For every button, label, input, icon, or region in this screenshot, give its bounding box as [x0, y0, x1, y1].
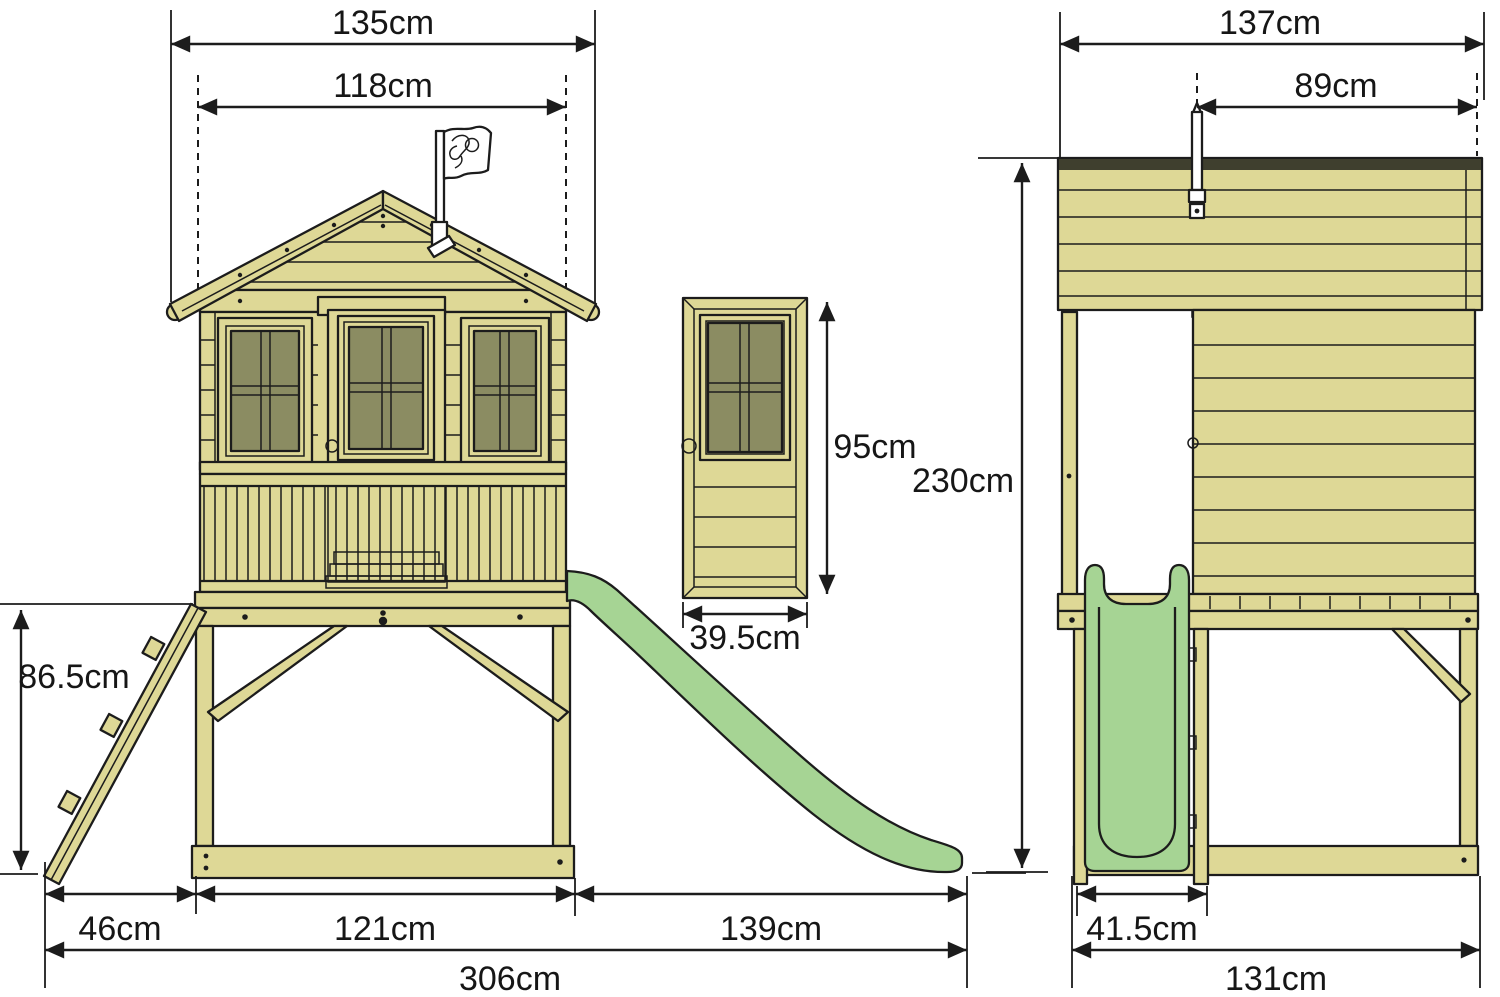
ladder-rung: [101, 714, 123, 737]
window-glass: [231, 331, 299, 451]
dim-label-total-height: 230cm: [912, 462, 1014, 500]
ladder-rung: [143, 637, 165, 660]
base-beam: [192, 846, 574, 878]
front-door: [318, 297, 445, 474]
diagram-canvas: 135cm 118cm 86.5cm 46cm 121cm 139cm 306c…: [0, 0, 1500, 997]
front-slide-profile: [567, 571, 962, 872]
nail-dot: [285, 248, 289, 252]
flag-pole-bracket: [1189, 190, 1205, 202]
front-window-left: [218, 318, 312, 464]
front-understructure: [192, 592, 574, 878]
bolt: [557, 859, 563, 865]
dim-label-door-height: 95cm: [833, 428, 916, 466]
ladder-rail-seam: [51, 608, 198, 880]
right-leg: [553, 626, 570, 846]
dim-label-base-width: 121cm: [334, 910, 436, 948]
bolt: [1067, 474, 1072, 479]
nail-dot: [524, 273, 528, 277]
side-wall: [1062, 310, 1475, 602]
dim-label-roof-to-back: 89cm: [1294, 67, 1377, 105]
flag-pole: [1192, 112, 1202, 190]
left-leg: [196, 626, 213, 846]
dim-label-slide-width: 41.5cm: [1086, 910, 1198, 948]
nail-dot: [238, 273, 242, 277]
door-window-glass: [708, 323, 782, 452]
bolt: [1461, 857, 1466, 862]
bolt: [1195, 209, 1200, 214]
nail-dot: [332, 223, 336, 227]
gable-panel: [213, 197, 553, 290]
veranda-post: [1062, 312, 1077, 602]
right-brace: [429, 626, 568, 721]
side-wall-panel: [1193, 310, 1475, 594]
dim-label-roof-width: 135cm: [332, 4, 434, 42]
dim-label-wall-width: 118cm: [333, 67, 433, 105]
height-reference-line: [978, 158, 1058, 872]
front-wall: [200, 297, 566, 474]
dim-label-total-width: 306cm: [459, 960, 561, 997]
ladder-rung: [59, 791, 81, 814]
nail-dot: [238, 299, 242, 303]
balustrade-panel: [200, 474, 566, 592]
flag-pole: [436, 131, 444, 231]
nail-dot: [381, 224, 385, 228]
bolt: [242, 614, 248, 620]
door-detail-view: 95cm 39.5cm: [682, 298, 917, 657]
dim-label-door-width: 39.5cm: [689, 619, 801, 657]
bolt: [1069, 617, 1075, 623]
back-leg: [1460, 629, 1477, 846]
side-flag-pole: [1189, 103, 1205, 218]
window-sill-rail: [200, 462, 566, 474]
nail-dot: [477, 248, 481, 252]
front-ladder: [44, 604, 206, 884]
side-elevation-view: 137cm 89cm 230cm 41.5cm 131cm: [912, 4, 1484, 997]
slide-chute-front: [1085, 565, 1189, 871]
nail-dot: [524, 299, 528, 303]
nail-dot: [381, 214, 385, 218]
platform-floor-edge: [195, 592, 570, 608]
window-glass: [474, 331, 536, 451]
side-roof: [1058, 158, 1482, 317]
bolt: [204, 866, 209, 871]
front-gable: [200, 197, 566, 312]
door-window-glass: [349, 327, 423, 449]
roof-panel: [1058, 158, 1482, 310]
bolt: [1465, 617, 1471, 623]
roof-ridge-shadow: [1059, 159, 1481, 170]
diagram-page: 135cm 118cm 86.5cm 46cm 121cm 139cm 306c…: [0, 0, 1500, 997]
front-window-right: [461, 318, 549, 464]
side-slide: [1085, 565, 1189, 871]
dim-label-ladder-base: 46cm: [78, 910, 161, 948]
dim-label-ladder-height: 86.5cm: [18, 658, 130, 696]
front-leg-right-ladder-side: [1194, 629, 1208, 884]
back-brace: [1392, 629, 1470, 702]
dim-label-base-depth: 131cm: [1225, 960, 1327, 997]
front-elevation-view: 135cm 118cm 86.5cm 46cm 121cm 139cm 306c…: [0, 4, 1026, 997]
left-brace: [208, 626, 347, 721]
bolt: [204, 854, 209, 859]
front-balustrade: [200, 474, 566, 592]
bolt: [379, 617, 387, 625]
dim-label-roof-depth: 137cm: [1219, 4, 1321, 42]
flag-cloth: [444, 127, 491, 179]
bolt: [517, 614, 523, 620]
dim-label-slide-run: 139cm: [720, 910, 822, 948]
bolt: [380, 610, 386, 616]
